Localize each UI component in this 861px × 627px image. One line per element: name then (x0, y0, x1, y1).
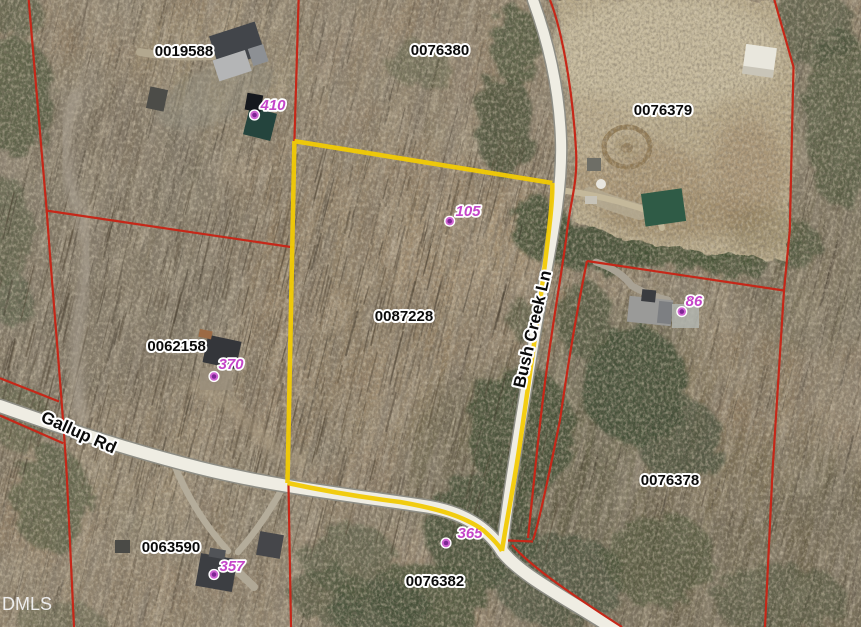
svg-text:0076379: 0076379 (634, 102, 692, 119)
svg-text:0076378: 0076378 (641, 472, 699, 489)
svg-text:86: 86 (686, 293, 703, 310)
svg-text:370: 370 (218, 356, 244, 373)
svg-text:410: 410 (259, 97, 286, 114)
svg-text:0062158: 0062158 (147, 338, 205, 355)
svg-text:0087228: 0087228 (375, 308, 433, 325)
svg-text:0076380: 0076380 (411, 42, 469, 59)
svg-text:0063590: 0063590 (142, 539, 200, 556)
svg-text:DMLS: DMLS (2, 594, 52, 614)
svg-text:105: 105 (455, 203, 481, 220)
svg-text:0076382: 0076382 (406, 573, 464, 590)
svg-text:0019588: 0019588 (155, 43, 213, 60)
svg-text:357: 357 (219, 558, 245, 575)
